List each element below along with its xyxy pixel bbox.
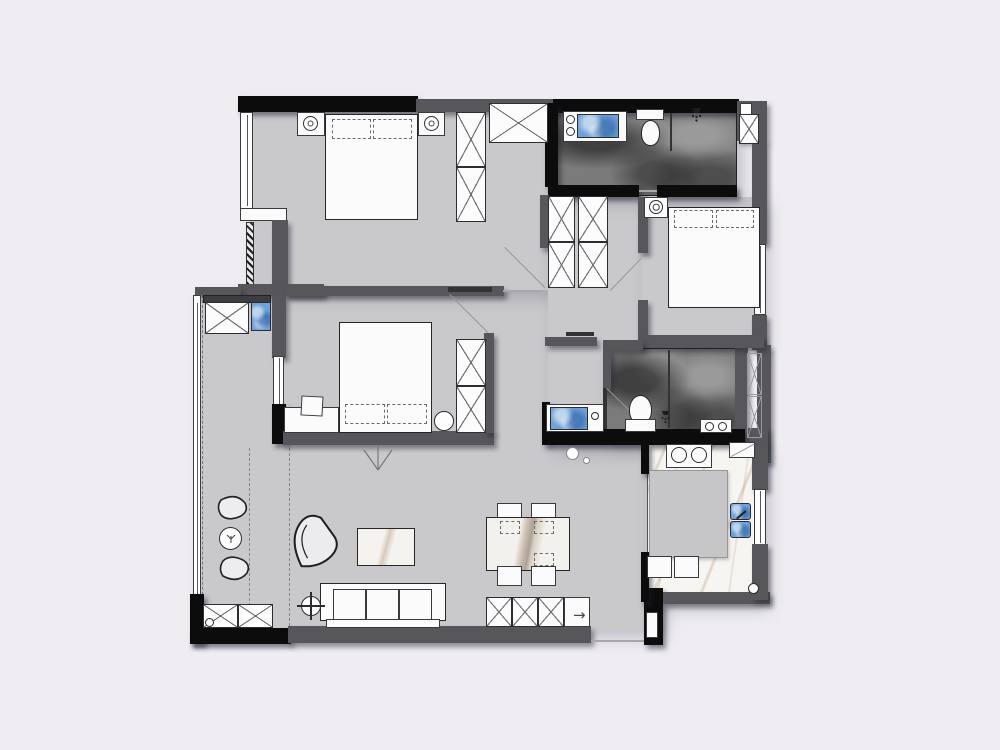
faucet-knob-icon [591, 412, 599, 420]
kitchen-window [754, 489, 766, 545]
floor-plan: → [0, 0, 1000, 750]
toilet2-base [625, 419, 656, 432]
toilet1-bowl [641, 120, 660, 146]
dining-chair [531, 566, 556, 586]
balcony-cabinet-b [238, 604, 273, 628]
wall-top-master-black [238, 96, 418, 112]
burner-icon [671, 447, 687, 463]
entry-threshold-line [591, 640, 644, 642]
wall-bedroom2-bottom [283, 431, 494, 445]
bedroom2-wardrobe-lower [456, 386, 486, 433]
kitchen-sink-lower [730, 521, 751, 538]
equipment-shaft-unit-a [747, 353, 762, 395]
dining-seat-mark [534, 521, 554, 534]
lamp-icon [424, 116, 439, 131]
wall-bathroom1-bottom-right [657, 185, 737, 197]
balcony-chair-icon [214, 494, 250, 530]
wall-bottom-left-black [190, 628, 291, 644]
entry-door-leaf [646, 612, 658, 638]
bedroom2-pillow-right [387, 404, 427, 424]
bedroom2-stool [300, 395, 323, 416]
coffee-table [357, 528, 415, 566]
toilet1-tank [636, 109, 664, 120]
wall-left-column-leg [272, 220, 288, 286]
master-bedroom-window [240, 112, 253, 209]
sofa-cushion [399, 589, 432, 620]
hall-light-icon-small [583, 457, 590, 464]
dining-seat-mark [500, 521, 520, 534]
bedroom2-wardrobe-upper [456, 339, 486, 386]
master-pillow-left [332, 119, 371, 139]
structural-column-hatch [246, 222, 254, 285]
faucet-knob-icon [566, 115, 575, 124]
balcony-glazing [193, 295, 201, 628]
master-top-cabinet [489, 103, 548, 143]
hall-closet-2b [578, 242, 608, 288]
bedroom2-door-leaf [448, 287, 492, 292]
right-bedroom-pillow-left [674, 210, 713, 228]
bedroom2-balcony-window [273, 356, 284, 406]
bedroom2-side-table [434, 411, 454, 431]
sofa-cushion [366, 589, 399, 620]
lounge-chair [284, 507, 346, 574]
wall-hall-south-stub [545, 337, 597, 346]
wall-bedroom2-left-upper [272, 296, 286, 358]
dining-chair [497, 566, 522, 586]
kitchen-cabinet-2 [674, 556, 699, 578]
hall-closet-2a [578, 196, 608, 242]
wall-right-bedroom-bottom [638, 335, 764, 348]
sofa-base [326, 619, 440, 628]
burner-icon [691, 447, 707, 463]
bathroom1-side-shaft [739, 114, 759, 144]
wall-bottom-living [288, 626, 591, 643]
balcony-track-line-1 [249, 448, 250, 626]
wall-kitchen-left-upper [641, 444, 649, 474]
lamp-icon [649, 200, 663, 214]
right-bedroom-pillow-right [716, 210, 754, 228]
hall-closet-1a [548, 196, 575, 242]
bedroom2-pillow-left [345, 404, 385, 424]
sideboard-cell [486, 597, 512, 627]
sideboard-cell [512, 597, 538, 627]
ceiling-light-icon [356, 444, 400, 474]
bathroom1-sink [577, 114, 619, 138]
washing-machine [205, 302, 249, 334]
master-wardrobe-lower [456, 167, 486, 222]
balcony-chair-icon [216, 546, 252, 582]
shower-head-icon [688, 107, 705, 123]
wall-balcony-top-thin [195, 287, 241, 295]
sofa-cushion [333, 589, 366, 620]
kitchen-cabinet-1 [647, 556, 672, 578]
right-bedroom-door-leaf [566, 332, 594, 336]
faucet-knob-icon [566, 127, 575, 136]
bathroom1-door-threshold [639, 190, 657, 192]
equipment-shaft-unit-b [747, 396, 762, 438]
hall-light-icon [566, 447, 579, 460]
sideboard-cell [538, 597, 564, 627]
plant-icon [224, 531, 238, 545]
hall-closet-1b [548, 242, 575, 288]
kitchen-sink-upper [730, 503, 751, 520]
kitchen-island [649, 470, 728, 558]
hall-vanity-sink [550, 407, 588, 430]
dining-table [486, 517, 570, 571]
master-wardrobe-upper [456, 112, 486, 167]
dining-seat-mark [534, 553, 554, 566]
shower-knob-icon [705, 422, 714, 431]
lamp-icon [303, 116, 318, 131]
master-pillow-right [373, 119, 412, 139]
balcony-sink [251, 302, 271, 331]
wall-bathroom2-top [603, 340, 643, 350]
divider-lintel-line [503, 290, 543, 292]
shower-head-icon [658, 410, 673, 424]
drain-icon [205, 618, 214, 627]
shower-glass-line [670, 113, 672, 151]
entry-arrow-icon: → [573, 608, 586, 623]
shower-knob-icon [718, 422, 727, 431]
floor-lamp-cross-h [297, 605, 325, 607]
wall-bathroom2-left [603, 350, 611, 390]
floor-drain-icon [748, 583, 759, 594]
